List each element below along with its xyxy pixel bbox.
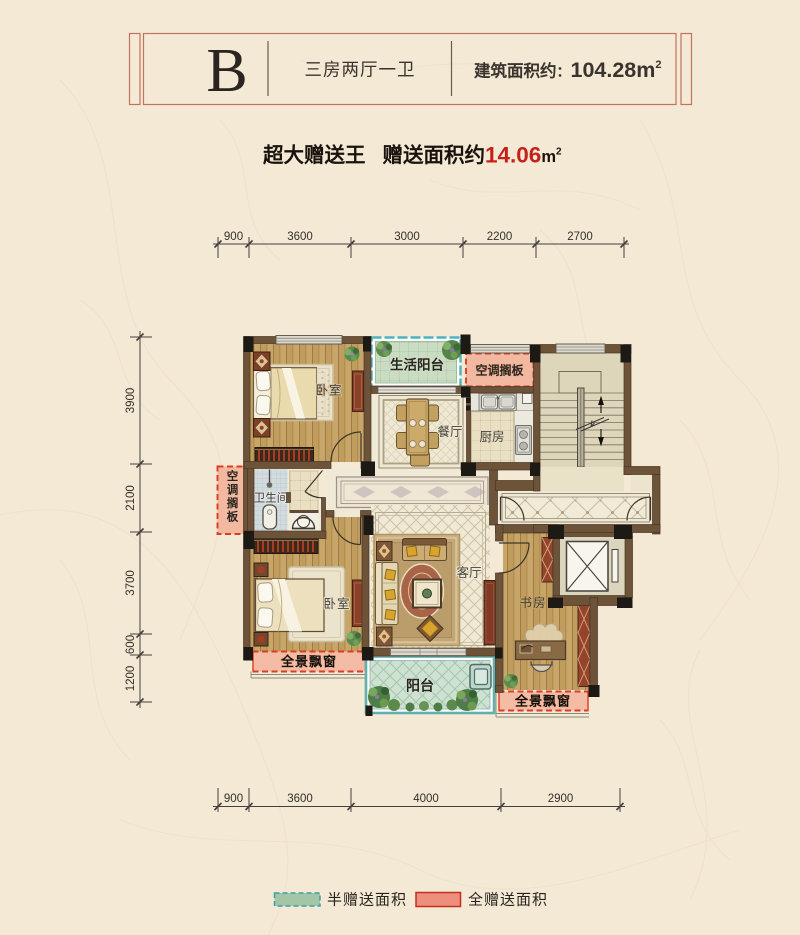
svg-text:客厅: 客厅 [456,565,481,580]
svg-text:空调搁板: 空调搁板 [475,363,524,378]
svg-text:900: 900 [224,231,243,243]
svg-text:3000: 3000 [394,231,420,243]
svg-text:4000: 4000 [413,793,439,805]
svg-text:全景飘窗: 全景飘窗 [280,654,337,669]
svg-text:600: 600 [125,635,137,654]
svg-text:空调搁板: 空调搁板 [227,469,239,524]
svg-text:卧室: 卧室 [315,383,342,398]
svg-text:卫生间: 卫生间 [254,491,289,505]
svg-text:B: B [206,37,247,105]
svg-text:3600: 3600 [287,793,313,805]
svg-text:3900: 3900 [125,388,137,414]
svg-text:三房两厅一卫: 三房两厅一卫 [305,60,416,80]
svg-text:半赠送面积: 半赠送面积 [327,892,407,909]
svg-text:2100: 2100 [125,485,137,511]
svg-text:餐厅: 餐厅 [437,424,462,439]
svg-text:全景飘窗: 全景飘窗 [514,694,571,709]
svg-text:2200: 2200 [487,231,513,243]
svg-text:超大赠送王赠送面积约14.06m2: 超大赠送王赠送面积约14.06m2 [262,143,562,168]
svg-text:阳台: 阳台 [406,678,434,694]
svg-text:2700: 2700 [567,231,593,243]
svg-text:2900: 2900 [548,793,574,805]
svg-text:生活阳台: 生活阳台 [390,357,444,373]
svg-text:900: 900 [224,793,243,805]
svg-text:书房: 书房 [519,595,546,610]
svg-text:全赠送面积: 全赠送面积 [468,891,548,909]
svg-text:1200: 1200 [125,666,137,692]
svg-text:3700: 3700 [125,570,137,596]
svg-text:3600: 3600 [287,231,313,243]
svg-text:厨房: 厨房 [479,429,504,444]
svg-text:卧室: 卧室 [323,596,350,611]
